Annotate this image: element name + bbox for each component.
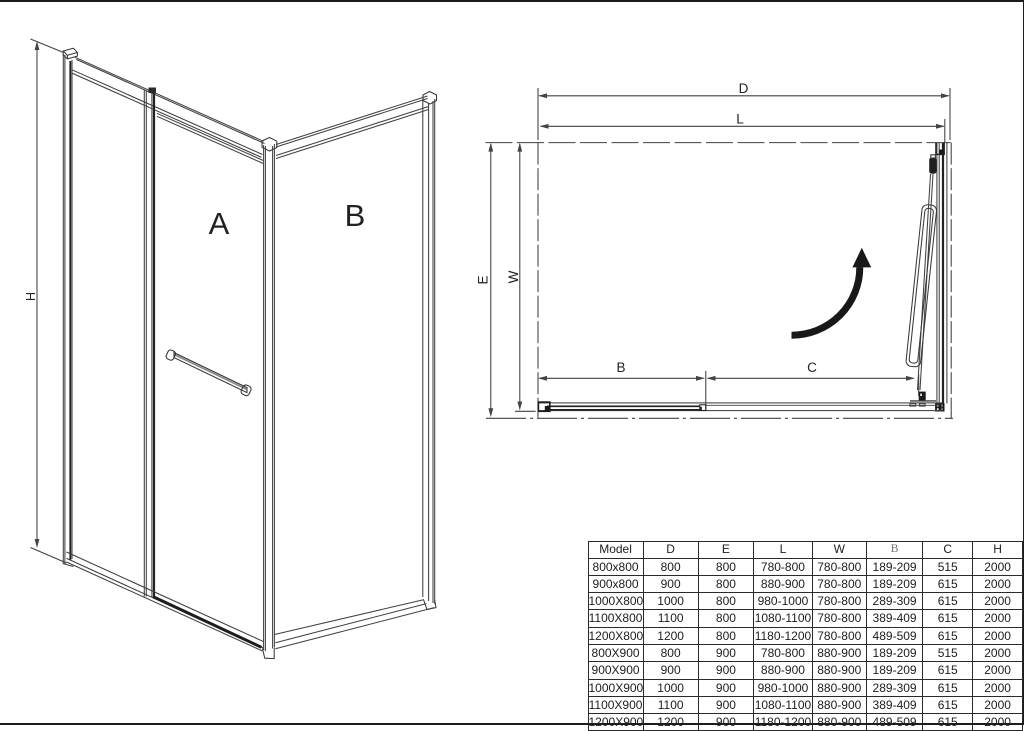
svg-text:H: H	[24, 292, 38, 301]
svg-text:D: D	[739, 81, 749, 96]
svg-text:A: A	[209, 206, 230, 241]
svg-text:L: L	[736, 112, 744, 127]
svg-text:W: W	[506, 270, 521, 283]
svg-text:E: E	[476, 275, 491, 284]
svg-text:B: B	[616, 360, 625, 375]
svg-text:B: B	[345, 198, 366, 233]
svg-text:C: C	[807, 360, 817, 375]
